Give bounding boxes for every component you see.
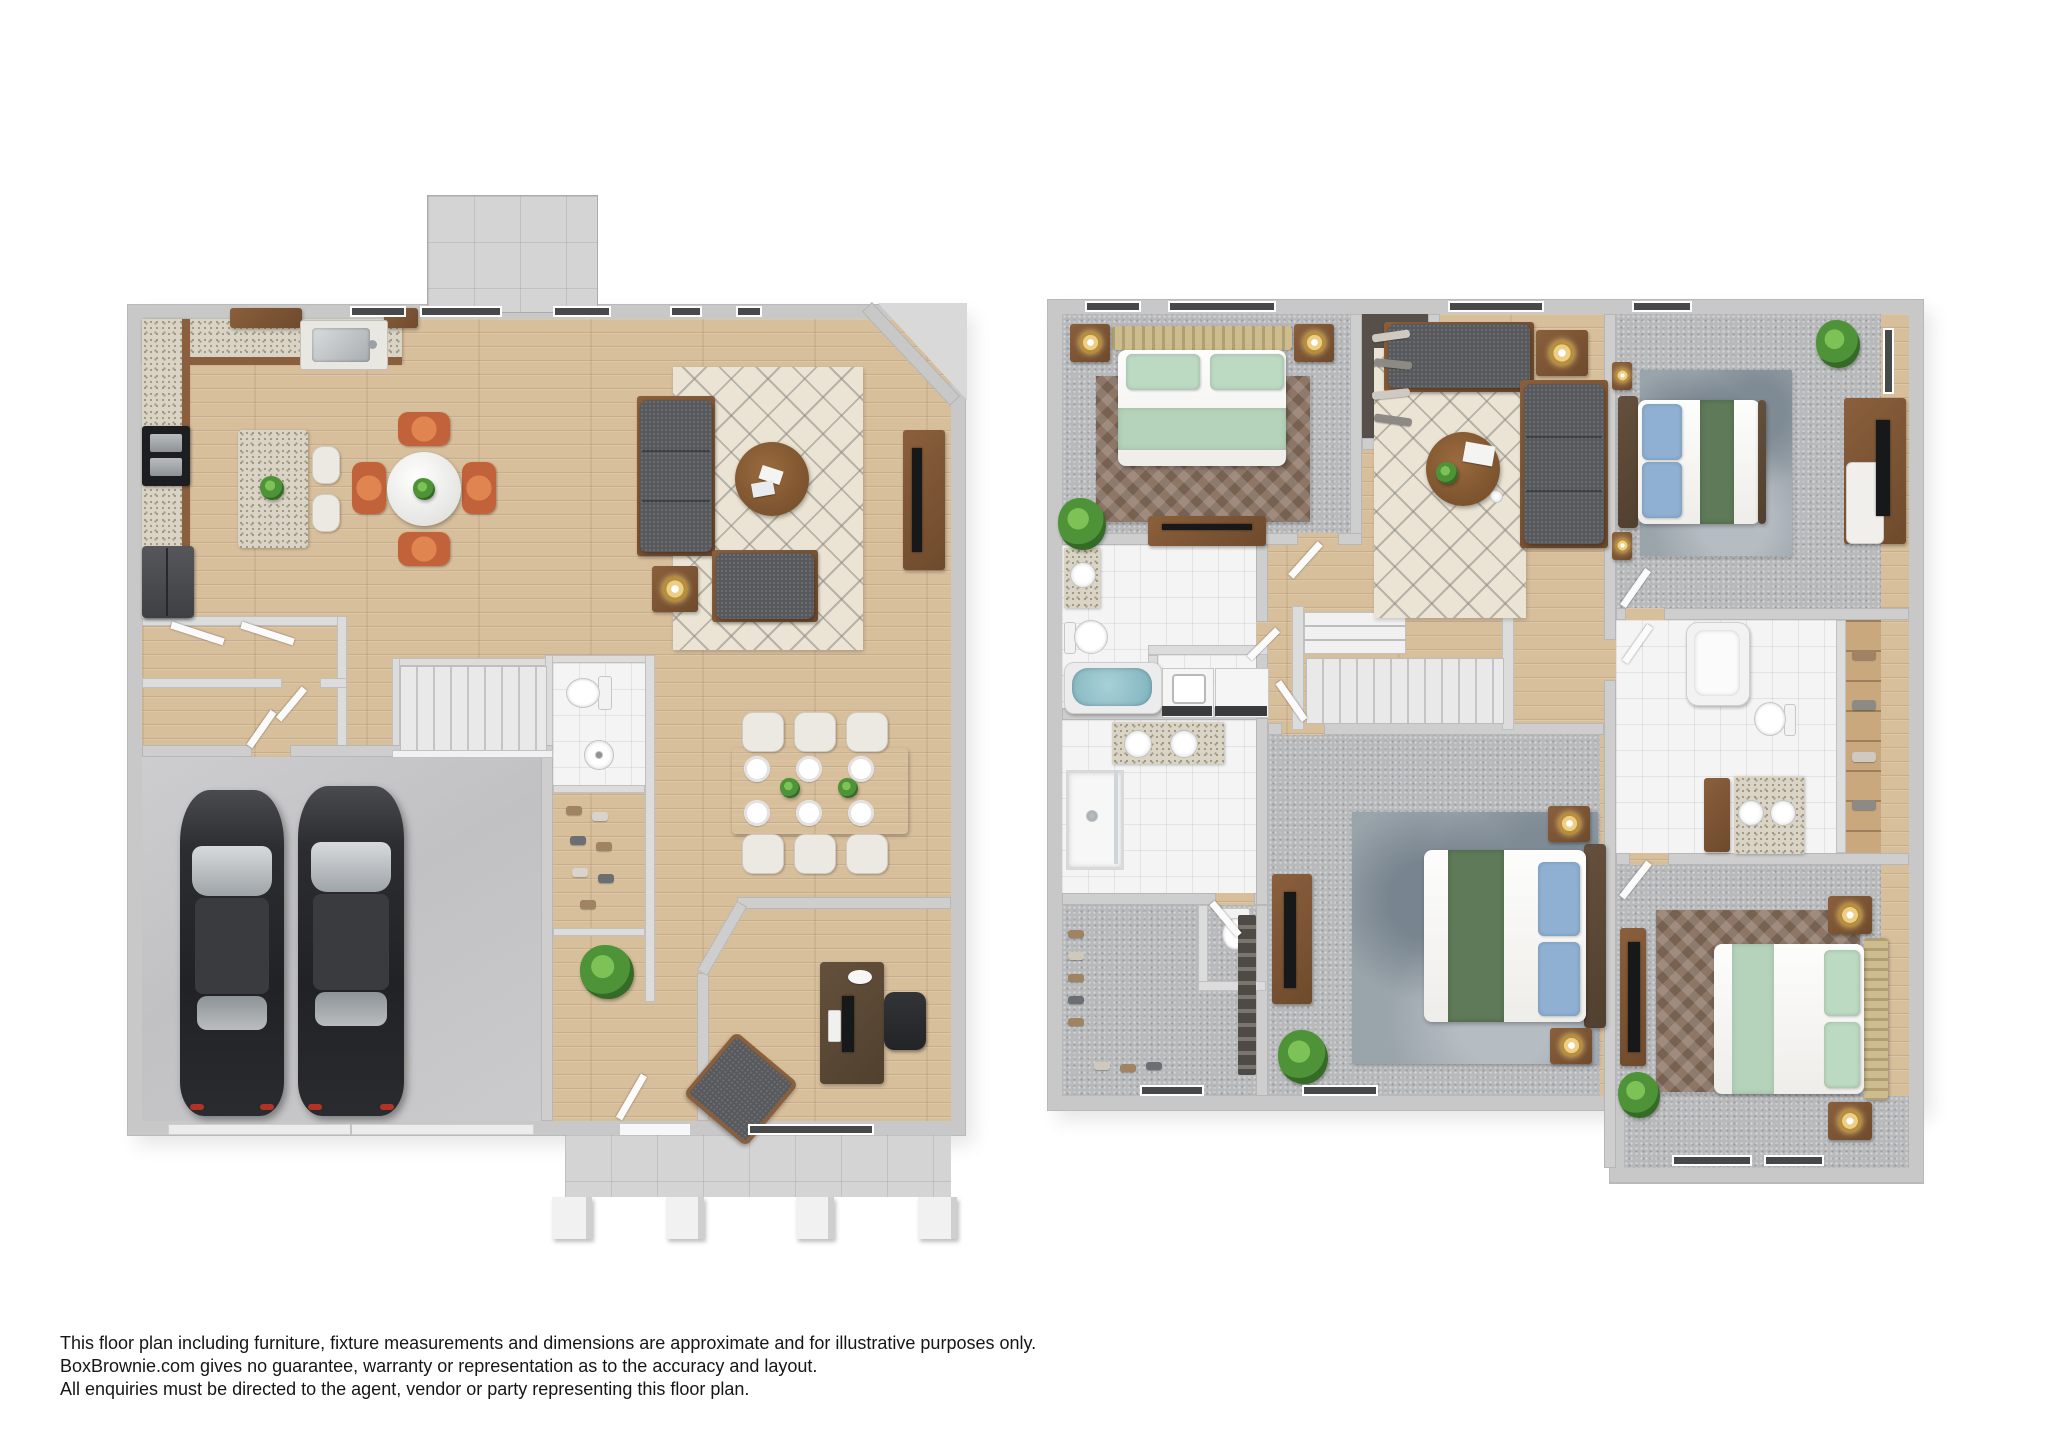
wall	[1338, 533, 1362, 545]
loft-lamp	[1549, 340, 1575, 366]
office-chair	[884, 992, 926, 1050]
place-setting	[796, 800, 822, 826]
wall	[1616, 853, 1630, 865]
sink-drain	[595, 751, 603, 759]
powder-wall	[545, 655, 655, 663]
pillow	[1824, 1022, 1860, 1088]
bed-runner	[1118, 408, 1286, 450]
television	[1876, 420, 1890, 516]
lamp	[1079, 331, 1102, 354]
toilet	[566, 678, 600, 708]
bed-runner	[1448, 850, 1504, 1022]
loveseat	[716, 553, 814, 619]
bed-runner	[1700, 400, 1734, 524]
coffee-cup	[1490, 490, 1503, 503]
pillow	[1210, 354, 1284, 390]
office-window	[748, 1124, 874, 1135]
floor-plan-rendering: This floor plan including furniture, fix…	[0, 0, 2048, 1447]
refrigerator-door-split	[166, 548, 168, 616]
entry-wall	[142, 678, 282, 688]
nook-chair	[462, 462, 496, 514]
table-plant	[1436, 462, 1458, 484]
stair-wall	[392, 658, 400, 756]
shoe	[1146, 1062, 1162, 1070]
refrigerator	[142, 546, 194, 618]
stair-railing	[392, 750, 553, 758]
wall	[1062, 893, 1216, 905]
railing-bar	[1304, 639, 1406, 641]
linen-wall	[1836, 620, 1846, 853]
bathtub-basin	[1694, 630, 1740, 696]
dining-chair	[794, 834, 836, 874]
pillow	[1126, 354, 1200, 390]
disclaimer-line-1: This floor plan including furniture, fix…	[60, 1332, 1036, 1355]
dining-chair	[742, 712, 784, 752]
window	[1448, 301, 1544, 312]
garage-wall	[541, 757, 553, 1121]
wall	[1664, 608, 1909, 620]
window	[553, 306, 611, 317]
powder-wall	[645, 655, 655, 1002]
lamp	[1615, 538, 1630, 553]
vanity-sink	[1070, 562, 1096, 588]
shoe	[566, 806, 582, 815]
car-taillight	[260, 1104, 274, 1110]
plant	[1058, 498, 1106, 550]
wc-wall	[1198, 905, 1208, 991]
oven-door	[150, 458, 182, 476]
window	[670, 306, 702, 317]
bed-runner	[1732, 944, 1774, 1094]
closet-hanging-rail	[1238, 915, 1256, 1075]
window	[1140, 1085, 1204, 1096]
porch-pillar	[918, 1197, 957, 1239]
wall	[1616, 608, 1626, 620]
bathtub-water	[1072, 668, 1152, 706]
upper-cabinet	[230, 308, 302, 328]
wall	[1668, 853, 1909, 865]
car-taillight	[308, 1104, 322, 1110]
shoe	[1120, 1064, 1136, 1072]
garage-wall	[142, 745, 252, 757]
closet-wall	[553, 928, 645, 936]
porch-pillar	[552, 1197, 592, 1239]
table-plant	[413, 478, 435, 500]
dining-chair	[742, 834, 784, 874]
faucet	[368, 340, 377, 349]
disclaimer-line-2: BoxBrownie.com gives no guarantee, warra…	[60, 1355, 1036, 1378]
oven-door	[150, 434, 182, 452]
lamp	[1838, 903, 1862, 927]
second-floor-bump-out	[1610, 1096, 1923, 1182]
car-windshield	[311, 842, 392, 892]
pillow	[1538, 862, 1580, 936]
lamp	[1615, 368, 1630, 383]
television	[1628, 942, 1640, 1052]
linen-items	[1852, 700, 1876, 710]
disclaimer-text: This floor plan including furniture, fix…	[60, 1332, 1036, 1401]
table-lamp	[662, 576, 688, 602]
place-setting	[744, 756, 770, 782]
car-taillight	[190, 1104, 204, 1110]
centerpiece	[838, 778, 858, 798]
window	[1302, 1085, 1378, 1096]
sofa-cushion-seam	[1526, 436, 1602, 438]
bed-footboard	[1758, 400, 1766, 524]
linen-items	[1852, 752, 1876, 762]
window	[1168, 301, 1276, 312]
toilet	[1074, 620, 1108, 654]
car-roof	[313, 894, 389, 990]
window	[350, 306, 406, 317]
pillow	[1538, 942, 1580, 1016]
staircase	[400, 666, 547, 752]
place-setting	[796, 756, 822, 782]
office-wall	[737, 897, 951, 909]
disclaimer-line-3: All enquiries must be directed to the ag…	[60, 1378, 1036, 1401]
plant	[1618, 1072, 1660, 1118]
porch-pillar	[796, 1197, 834, 1239]
plant	[1278, 1030, 1328, 1084]
entry-wall	[320, 678, 347, 688]
hall-plant	[580, 945, 634, 999]
shoe	[580, 900, 596, 909]
window	[1764, 1155, 1824, 1166]
wall	[1268, 723, 1282, 735]
staircase-upper	[1306, 658, 1504, 724]
lamp	[1303, 331, 1326, 354]
kitchen-sink	[312, 328, 370, 362]
car-windshield	[192, 846, 271, 896]
dining-chair	[846, 712, 888, 752]
window	[1672, 1155, 1752, 1166]
washer-controls	[1162, 706, 1212, 716]
window	[1085, 301, 1141, 312]
car-taillight	[380, 1104, 394, 1110]
shoe	[1068, 930, 1084, 938]
place-setting	[848, 800, 874, 826]
washer-door	[1172, 674, 1206, 704]
sofa-cushion-seam	[642, 500, 710, 502]
dresser	[1148, 516, 1266, 546]
car	[298, 786, 404, 1116]
shoe	[592, 812, 608, 821]
bar-stool	[312, 446, 340, 484]
wall	[1256, 905, 1268, 1096]
media-console	[903, 430, 945, 570]
shoe	[570, 836, 586, 845]
dryer-controls	[1215, 706, 1267, 716]
patio-chimney	[428, 196, 597, 312]
shoe	[1094, 1062, 1110, 1070]
dining-chair	[794, 712, 836, 752]
centerpiece	[780, 778, 800, 798]
dining-chair	[846, 834, 888, 874]
window	[1632, 301, 1692, 312]
porch-pillar	[666, 1197, 704, 1239]
lamp	[1560, 1034, 1583, 1057]
vanity-sink	[1770, 800, 1796, 826]
pillow	[1642, 404, 1682, 460]
shoe	[596, 842, 612, 851]
shoe	[572, 868, 588, 877]
window	[736, 306, 762, 317]
place-setting	[744, 800, 770, 826]
island-plant	[260, 476, 284, 500]
sofa	[640, 400, 712, 552]
dresser-top-item	[1162, 524, 1252, 530]
shower-glass	[1114, 770, 1118, 864]
bed-headboard	[1864, 938, 1888, 1100]
stair-landing-railing	[1304, 612, 1406, 654]
bed-headboard	[1112, 326, 1292, 350]
linen-items	[1852, 800, 1876, 810]
lamp	[1558, 812, 1581, 835]
vanity-sink	[1738, 800, 1764, 826]
bar-stool	[312, 494, 340, 532]
wall	[1256, 545, 1268, 622]
wall	[1324, 723, 1604, 735]
front-porch	[565, 1135, 951, 1197]
vanity-sink	[1124, 730, 1152, 758]
powder-wall	[553, 785, 645, 793]
plant	[1816, 320, 1860, 368]
window	[1883, 328, 1894, 394]
shoe	[1068, 952, 1084, 960]
shoe	[1068, 974, 1084, 982]
nook-chair	[398, 412, 450, 446]
car-rear-window	[315, 992, 387, 1026]
front-door-opening	[620, 1124, 690, 1135]
pillow	[1824, 950, 1860, 1016]
car-roof	[195, 898, 270, 994]
garage-door-seam	[350, 1124, 352, 1135]
car	[180, 790, 284, 1116]
shoe	[598, 874, 614, 883]
shower-drain	[1086, 810, 1098, 822]
desk-monitor	[842, 996, 854, 1052]
car-rear-window	[197, 996, 268, 1030]
patio-door	[420, 306, 502, 317]
bed-headboard	[1584, 844, 1606, 1028]
vanity-sink	[1170, 730, 1198, 758]
toilet	[1754, 702, 1786, 736]
toilet-tank	[598, 676, 612, 710]
lamp	[1838, 1109, 1862, 1133]
linen-items	[1852, 650, 1876, 660]
railing-bar	[1304, 625, 1406, 627]
wall	[1256, 718, 1268, 905]
desk-keyboard	[828, 1010, 841, 1042]
vanity-cabinet	[1704, 778, 1730, 852]
loft-sofa-chaise	[1524, 384, 1604, 544]
television	[1284, 892, 1296, 988]
shoe	[1068, 996, 1084, 1004]
pillow	[1642, 462, 1682, 518]
nook-chair	[352, 462, 386, 514]
television	[912, 448, 922, 552]
stair-wall	[392, 658, 553, 666]
bed-headboard	[1618, 396, 1638, 528]
desk-papers	[848, 970, 872, 984]
sofa-cushion-seam	[642, 450, 710, 452]
shoe	[1068, 1018, 1084, 1026]
sofa-cushion-seam	[1526, 490, 1602, 492]
wall	[1350, 314, 1362, 545]
nook-chair	[398, 532, 450, 566]
